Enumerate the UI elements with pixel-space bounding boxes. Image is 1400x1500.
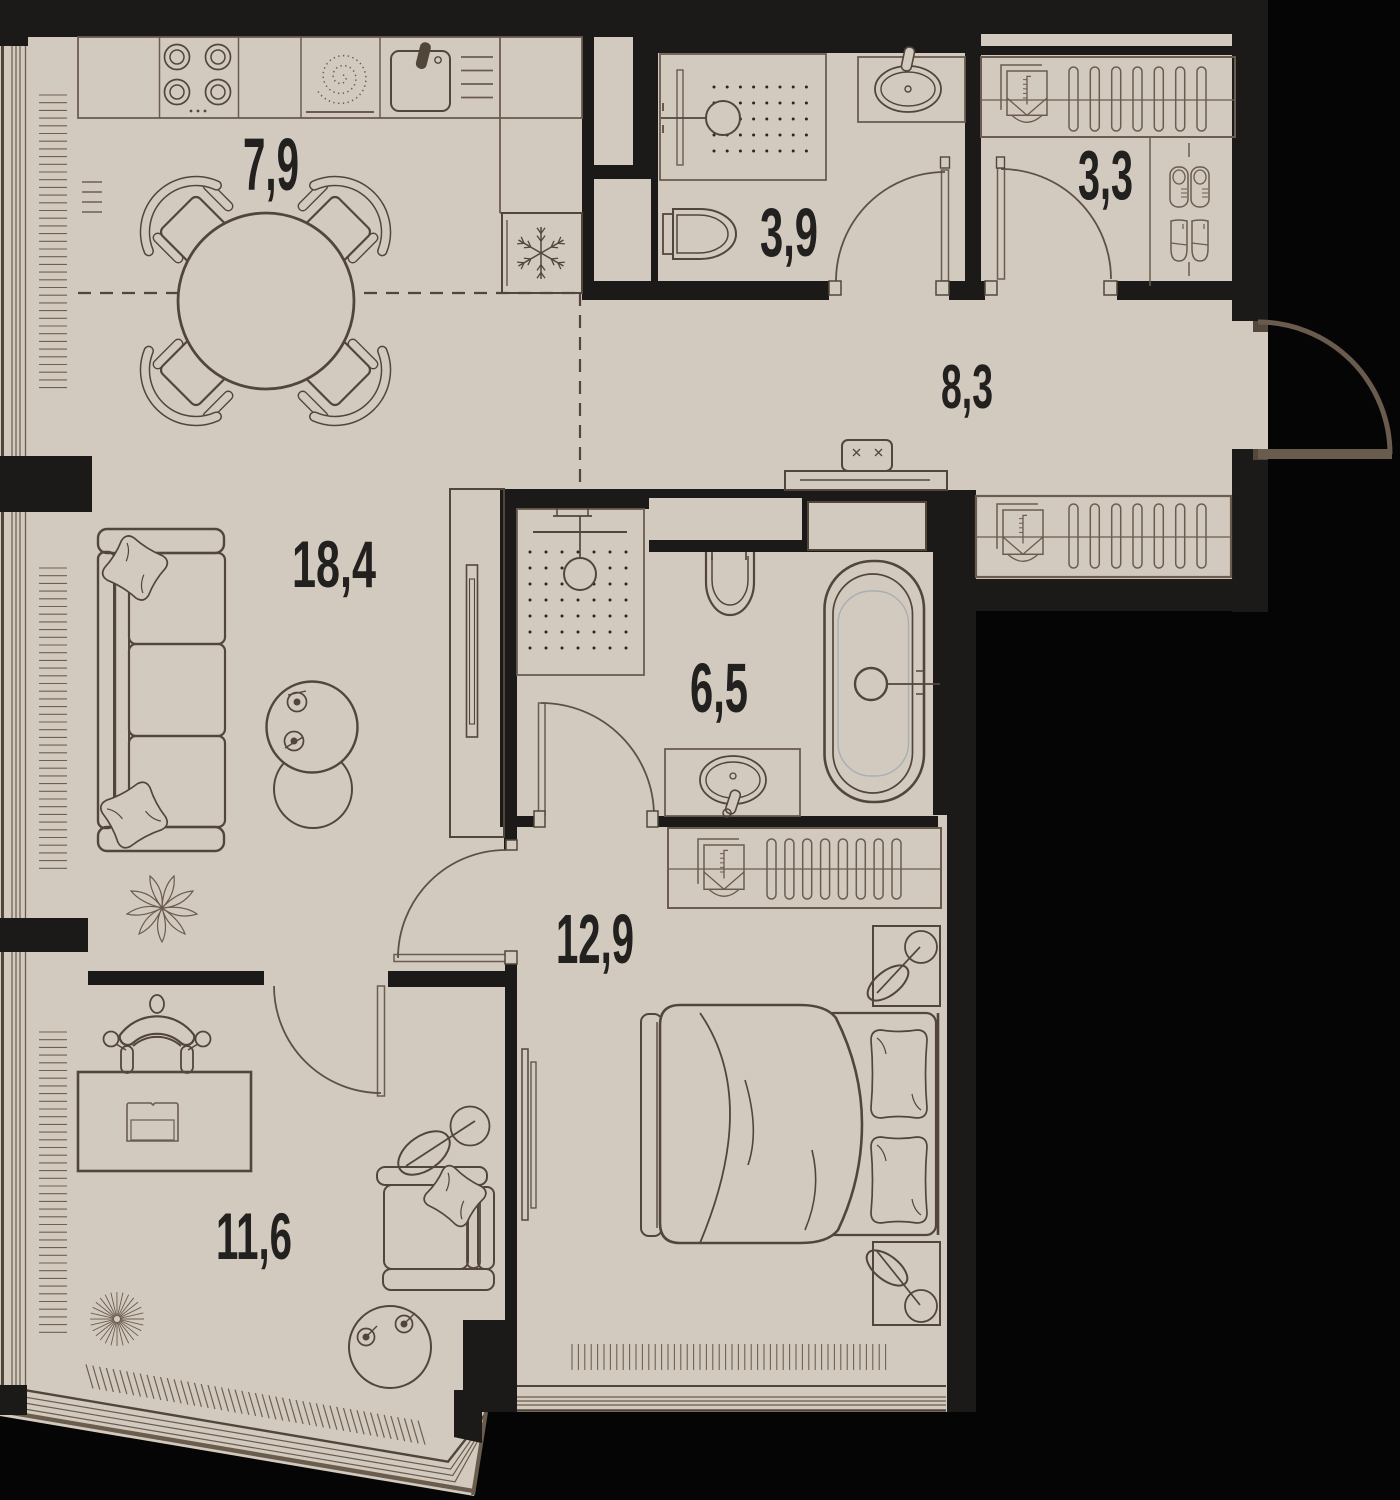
- svg-text:11,6: 11,6: [216, 1199, 292, 1273]
- svg-text:6,5: 6,5: [690, 649, 748, 727]
- svg-text:7,9: 7,9: [243, 123, 299, 206]
- svg-text:3,3: 3,3: [1078, 136, 1133, 214]
- svg-text:18,4: 18,4: [292, 527, 376, 601]
- svg-text:8,3: 8,3: [941, 353, 993, 422]
- svg-text:12,9: 12,9: [556, 900, 634, 978]
- svg-text:3,9: 3,9: [760, 194, 818, 271]
